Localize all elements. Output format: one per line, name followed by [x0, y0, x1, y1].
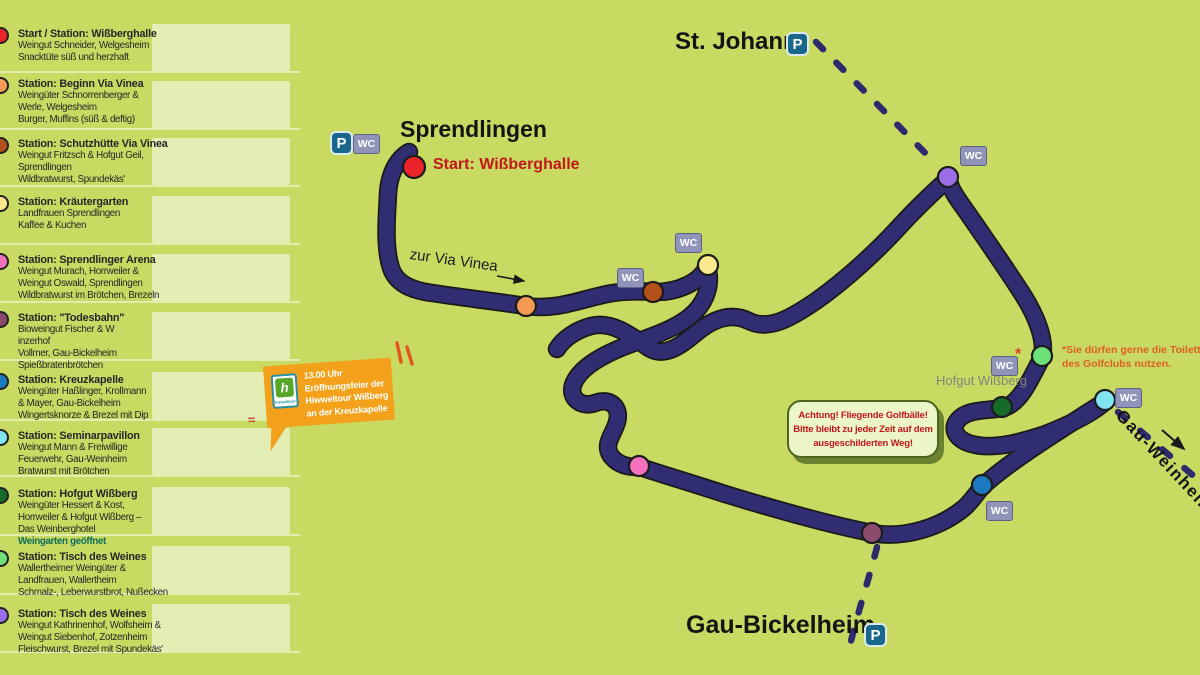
- station-marker: [643, 282, 663, 302]
- route-map-canvas: [0, 0, 1200, 675]
- dashed-path-st-johann: [816, 42, 938, 166]
- opening-event-flag: h hiwweltour 13.00 Uhr Eröffnungsfeier d…: [263, 358, 395, 429]
- station-marker: [938, 167, 958, 187]
- hiwweltour-logo: h hiwweltour: [271, 373, 299, 409]
- station-marker: [698, 255, 718, 275]
- hiwweltour-logo-letter: h: [275, 377, 294, 397]
- wc-icon: WC: [675, 233, 702, 253]
- station-marker: [1095, 390, 1115, 410]
- spark-mark: [407, 347, 412, 364]
- golfclub-toilet-note: *Sie dürfen gerne die Toiletten des Golf…: [1062, 344, 1200, 371]
- hiwweltour-logo-text: hiwweltour: [274, 398, 296, 405]
- toilet-asterisk: *: [1015, 346, 1021, 364]
- town-label: St. Johann: [675, 28, 798, 56]
- parking-icon: P: [330, 131, 353, 155]
- golf-warning-line: ausgeschilderten Weg!: [789, 437, 937, 451]
- station-marker: [1032, 346, 1052, 366]
- station-marker: [516, 296, 536, 316]
- wc-icon: WC: [1115, 388, 1142, 408]
- event-flag-text: 13.00 Uhr Eröffnungsfeier der Hiwweltour…: [303, 364, 392, 420]
- start-label: Start: Wißberghalle: [433, 156, 580, 174]
- wc-icon: WC: [991, 356, 1018, 376]
- golf-warning-box: Achtung! Fliegende Golfbälle! Bitte blei…: [787, 400, 939, 458]
- wc-icon: WC: [617, 268, 644, 288]
- via-vinea-arrow: [497, 276, 524, 281]
- wc-icon: WC: [960, 146, 987, 166]
- town-label: Sprendlingen: [400, 116, 547, 143]
- route-path: [387, 152, 1107, 535]
- station-marker: [403, 156, 425, 178]
- gau-weinheim-arrow: [1162, 430, 1184, 449]
- station-marker: [862, 523, 882, 543]
- parking-icon: P: [864, 623, 887, 647]
- wc-icon: WC: [986, 501, 1013, 521]
- parking-icon: P: [786, 32, 809, 56]
- golf-warning-line: Achtung! Fliegende Golfbälle!: [789, 409, 937, 423]
- station-marker: [972, 475, 992, 495]
- toilet-note-line: des Golfclubs nutzen.: [1062, 358, 1200, 372]
- station-marker: [629, 456, 649, 476]
- town-label: Gau-Bickelheim: [686, 611, 875, 640]
- wc-icon: WC: [353, 134, 380, 154]
- spark-mark: [397, 343, 401, 362]
- station-marker: [992, 397, 1012, 417]
- tour-map-poster: Start / Station: WißberghalleWeingut Sch…: [0, 0, 1200, 675]
- toilet-note-line: *Sie dürfen gerne die Toiletten: [1062, 344, 1200, 358]
- golf-warning-line: Bitte bleibt zu jeder Zeit auf dem: [789, 423, 937, 437]
